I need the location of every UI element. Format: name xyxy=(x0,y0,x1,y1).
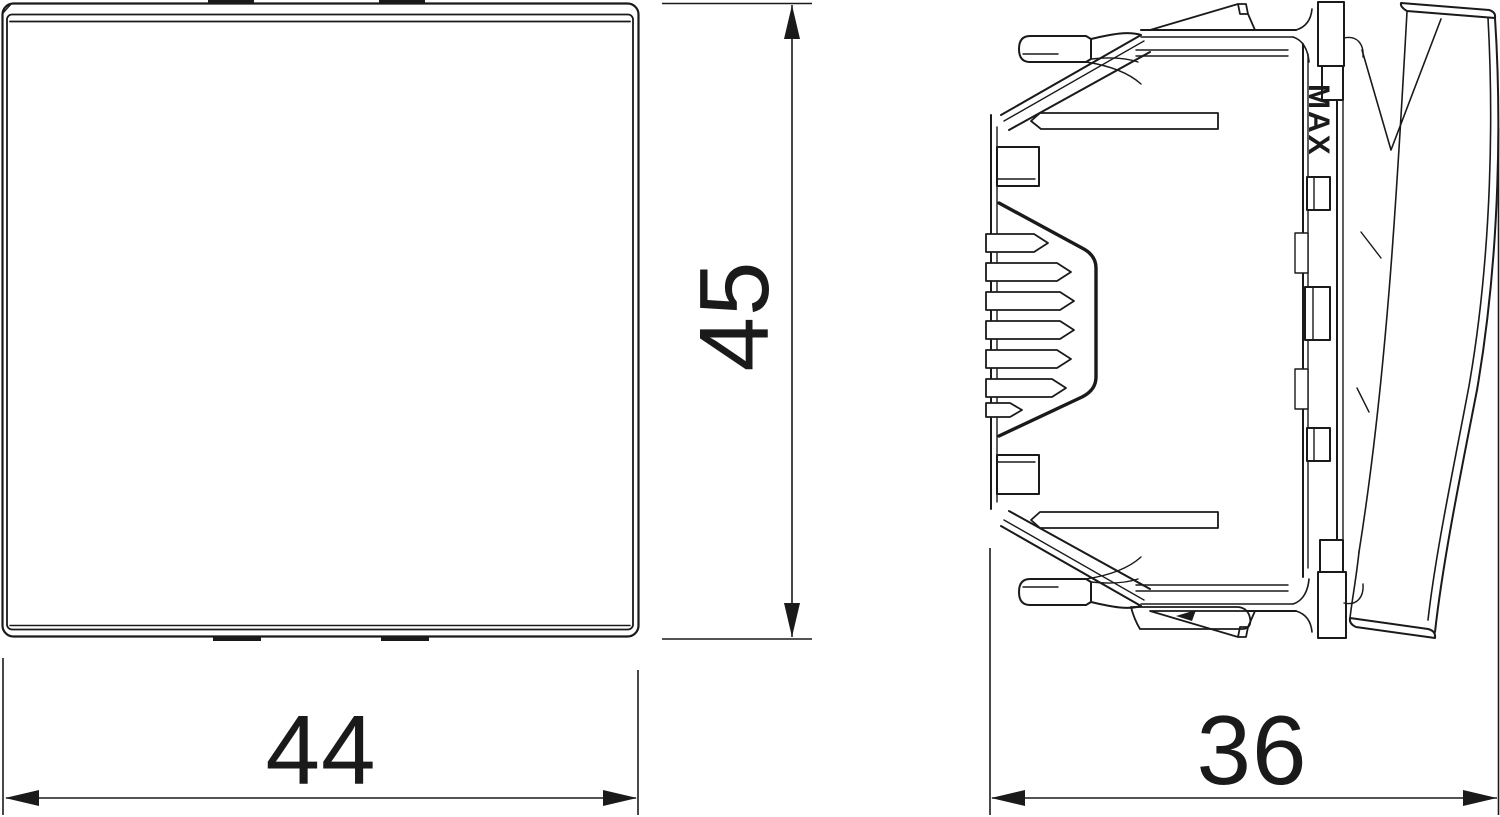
technical-drawing: MAX 44 xyxy=(0,0,1500,817)
flange-top-tab xyxy=(1318,2,1344,66)
top-shelf xyxy=(1031,113,1218,129)
drawing-canvas: MAX 44 xyxy=(0,0,1500,817)
left-clip-top xyxy=(997,147,1039,186)
dimension-width: 44 xyxy=(3,658,638,815)
rocker-gap-crease xyxy=(1362,19,1441,150)
side-view: MAX xyxy=(986,2,1498,638)
dimension-height: 45 xyxy=(662,4,812,640)
rocker xyxy=(1344,3,1498,638)
top-claw xyxy=(1019,33,1141,84)
arrowhead-left xyxy=(5,790,39,806)
flange-bottom-tab xyxy=(1318,572,1346,638)
cover-plate-outline xyxy=(3,4,639,637)
arrowhead-left xyxy=(991,790,1025,806)
body-top-edge xyxy=(1136,9,1312,62)
arrowhead-down xyxy=(784,603,800,637)
dimension-height-value: 45 xyxy=(679,260,789,371)
max-marking-label: MAX xyxy=(1302,84,1335,157)
arrowhead-right xyxy=(1463,790,1497,806)
top-diagonal-strut xyxy=(1001,35,1150,130)
arrowhead-right xyxy=(603,790,637,806)
flange-clip-middle xyxy=(1305,287,1330,340)
dimension-depth: 36 xyxy=(990,128,1499,815)
flange-clip-top xyxy=(1307,177,1330,210)
bottom-shelf xyxy=(1031,512,1218,528)
front-view xyxy=(3,0,639,641)
left-clip-bottom xyxy=(997,455,1039,494)
top-spring-arm xyxy=(1150,4,1255,30)
flange-clip-bottom xyxy=(1307,428,1330,461)
dimension-depth-value: 36 xyxy=(1196,695,1307,805)
pivot-notch-bottom xyxy=(1295,369,1308,409)
arrowhead-up xyxy=(784,5,800,39)
pivot-notch-top xyxy=(1295,233,1308,273)
dimension-width-value: 44 xyxy=(265,695,376,805)
bottom-claw xyxy=(1019,557,1141,608)
louvers xyxy=(986,234,1074,417)
bottom-diagonal-strut xyxy=(1001,511,1150,606)
